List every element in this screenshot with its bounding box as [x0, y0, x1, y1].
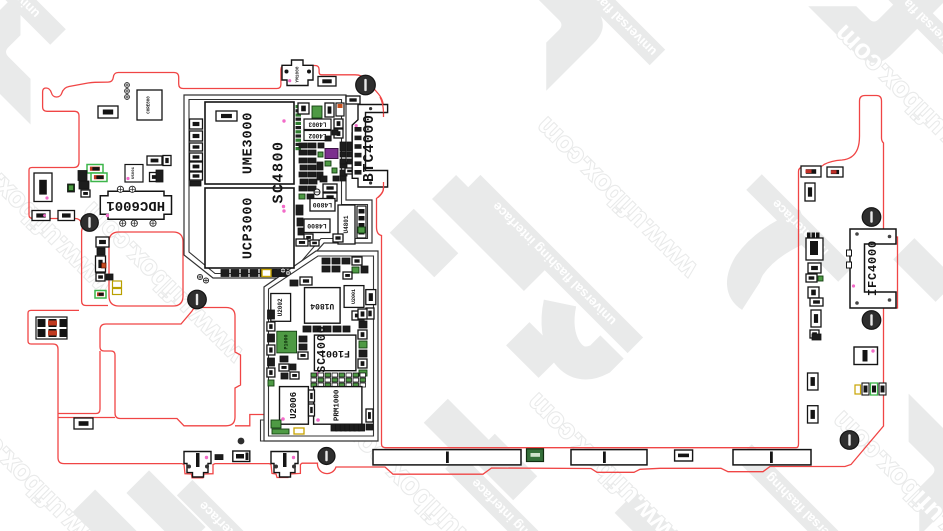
svg-text:U5001: U5001	[132, 166, 136, 179]
svg-text:HDC6001: HDC6001	[106, 197, 165, 213]
svg-text:U2006: U2006	[289, 392, 299, 419]
svg-text:U2001: U2001	[351, 289, 357, 304]
svg-text:UCP3000: UCP3000	[242, 197, 257, 259]
svg-text:C0RE800: C0RE800	[148, 96, 152, 114]
svg-text:SC4800: SC4800	[271, 140, 288, 203]
svg-text:U1804: U1804	[310, 301, 334, 310]
svg-text:L4800: L4800	[313, 201, 333, 208]
svg-text:PRM1000: PRM1000	[334, 389, 342, 421]
svg-text:L4002: L4002	[308, 132, 326, 139]
svg-text:UME3000: UME3000	[242, 112, 257, 174]
svg-text:L4800: L4800	[307, 222, 327, 229]
svg-text:P1000: P1000	[284, 334, 290, 349]
svg-text:L4003: L4003	[308, 121, 326, 128]
svg-text:BTC4000: BTC4000	[362, 114, 378, 182]
svg-text:YM1000: YM1000	[295, 66, 301, 83]
svg-text:SC4000: SC4000	[316, 325, 329, 372]
svg-text:IFC4000: IFC4000	[866, 240, 880, 296]
svg-text:U4801: U4801	[343, 215, 350, 233]
svg-text:U2002: U2002	[277, 298, 284, 316]
